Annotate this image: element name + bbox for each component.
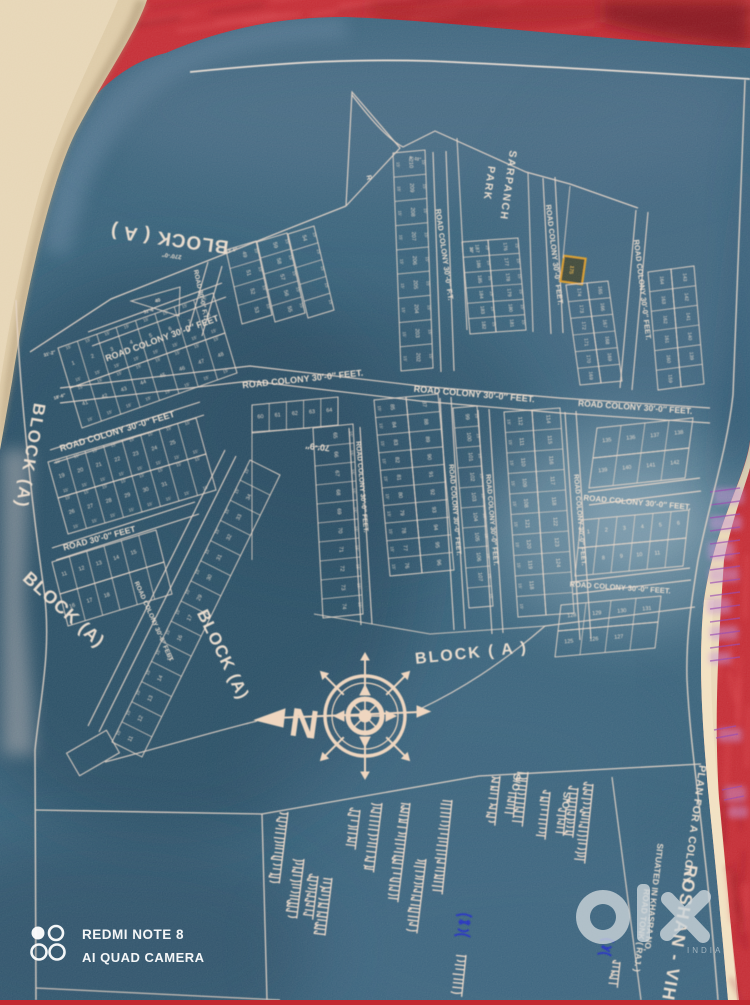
svg-text:AI QUAD CAMERA: AI QUAD CAMERA (82, 950, 205, 965)
svg-text:REDMI NOTE 8: REDMI NOTE 8 (82, 927, 184, 942)
svg-text:INDIA: INDIA (687, 946, 723, 955)
